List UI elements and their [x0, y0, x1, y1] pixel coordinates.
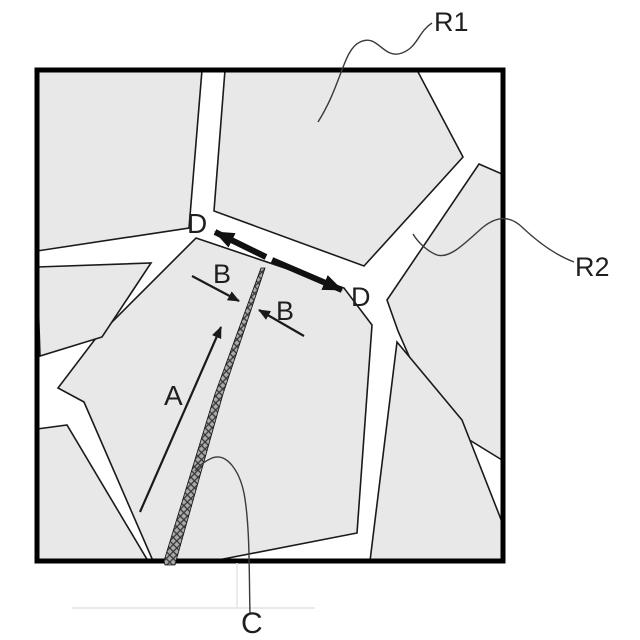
- label-a: A: [164, 380, 183, 411]
- label-d-right: D: [351, 282, 371, 312]
- label-b-right: B: [276, 296, 294, 326]
- patent-figure: R1 R2 D D B B A C: [0, 0, 640, 640]
- grain-top-left: [37, 70, 202, 251]
- label-c: C: [241, 607, 263, 640]
- label-r2: R2: [575, 252, 610, 282]
- label-b-left: B: [213, 259, 231, 289]
- figure-canvas: R1 R2 D D B B A C: [0, 0, 640, 640]
- label-r1: R1: [434, 7, 469, 37]
- label-d-left: D: [187, 208, 207, 239]
